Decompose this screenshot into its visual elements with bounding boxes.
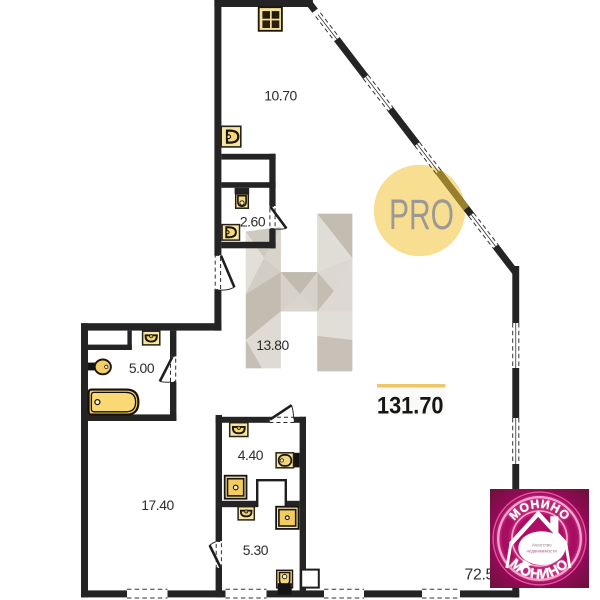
svg-text:4.40: 4.40 bbox=[238, 447, 264, 463]
svg-text:5.00: 5.00 bbox=[129, 360, 155, 376]
svg-text:13.80: 13.80 bbox=[256, 337, 289, 353]
svg-text:5.30: 5.30 bbox=[243, 542, 269, 558]
svg-text:2.60: 2.60 bbox=[240, 214, 266, 230]
svg-text:131.70: 131.70 bbox=[377, 392, 444, 419]
svg-text:17.40: 17.40 bbox=[141, 497, 174, 513]
svg-text:недвижимости: недвижимости bbox=[527, 548, 558, 553]
svg-text:PRO: PRO bbox=[389, 192, 454, 239]
svg-text:Агентство: Агентство bbox=[532, 543, 552, 548]
svg-text:10.70: 10.70 bbox=[264, 87, 297, 103]
